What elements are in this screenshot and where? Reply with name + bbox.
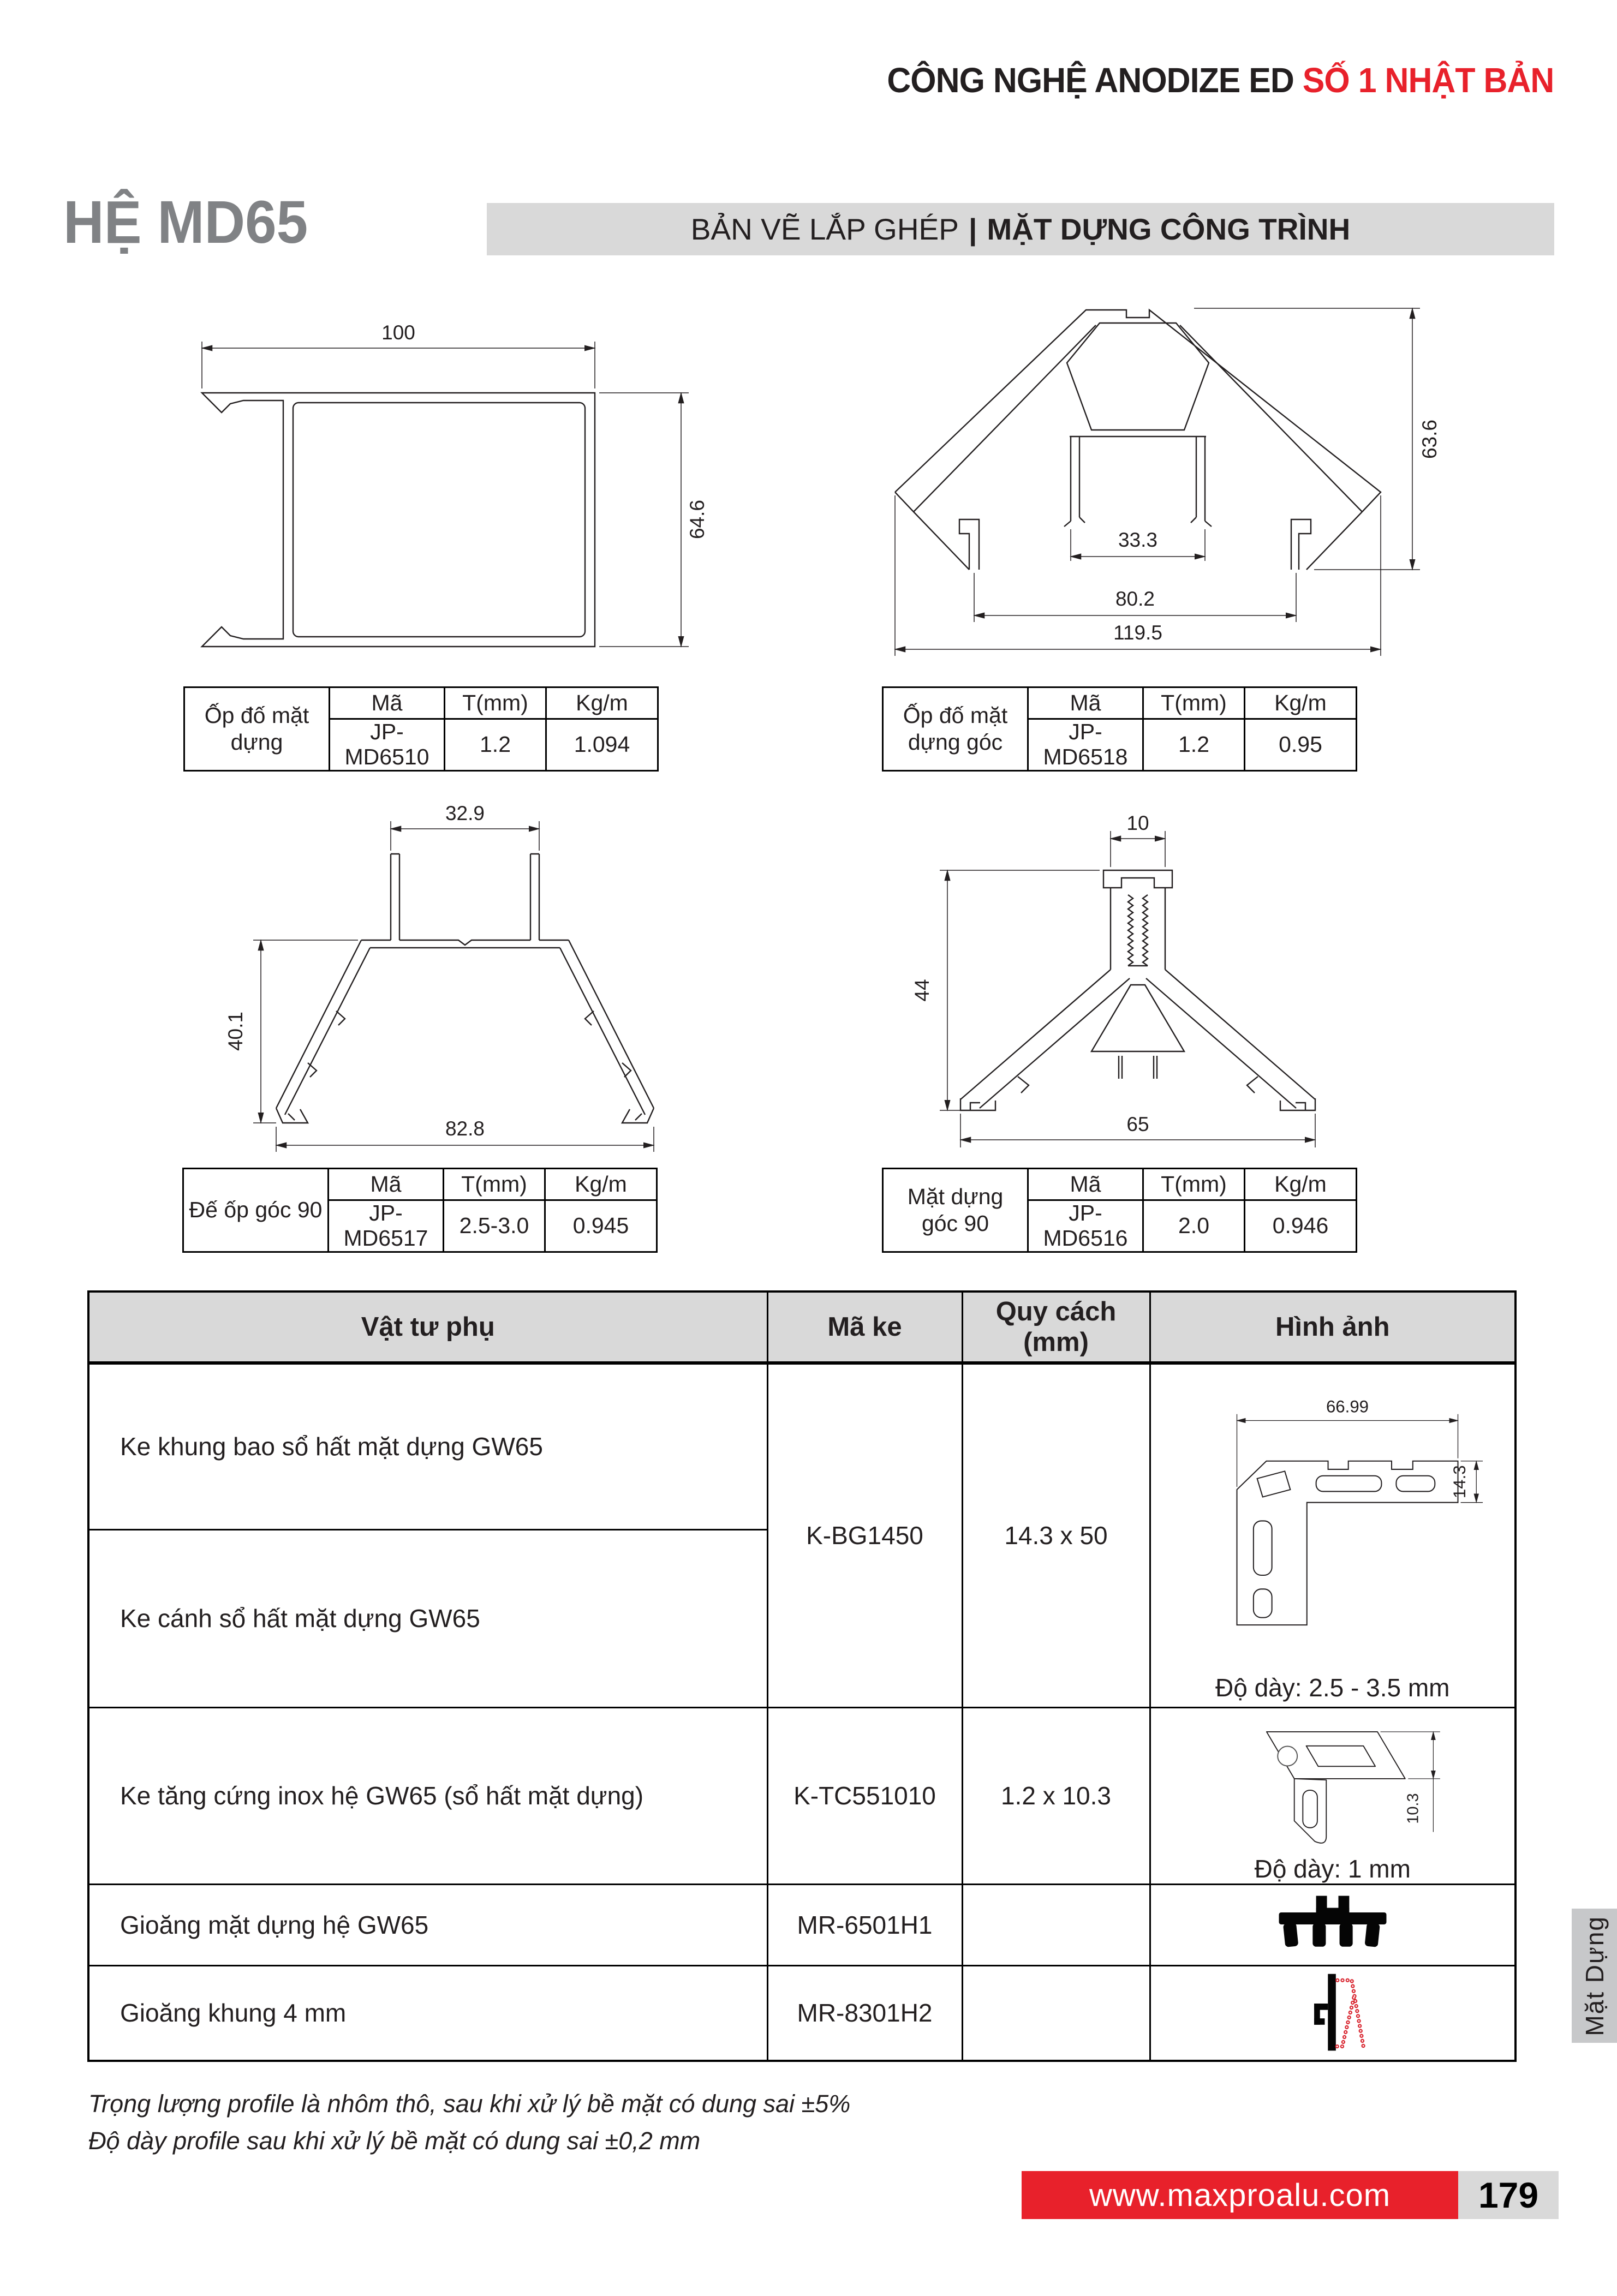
profile-name: Ốp đố mặt dựng góc <box>883 687 1028 771</box>
col-ma: Mã <box>1028 1169 1143 1200</box>
accessories-table: Vật tư phụ Mã ke Quy cách (mm) Hình ảnh … <box>87 1290 1517 2062</box>
banner-divider: | <box>969 212 977 247</box>
accessory-label: Ke tăng cứng inox hệ GW65 (sổ hất mặt dự… <box>88 1707 767 1884</box>
profile-thickness: 2.5-3.0 <box>444 1200 545 1252</box>
profile-drawing-op-do-mat-dung: 100 64.6 <box>164 289 742 671</box>
system-title: HỆ MD65 <box>63 188 308 257</box>
dim-label: 40.1 <box>224 1012 247 1051</box>
footnote-line: Độ dày profile sau khi xử lý bề mặt có d… <box>88 2122 850 2160</box>
profile-weight: 0.945 <box>545 1200 657 1252</box>
col-t: T(mm) <box>1143 1169 1245 1200</box>
banner-right: MẶT DỰNG CÔNG TRÌNH <box>987 212 1350 247</box>
accessory-label: Ke cánh sổ hất mặt dựng GW65 <box>88 1529 767 1707</box>
profile-drawing-op-do-mat-dung-goc: 33.3 63.6 80.2 119.5 <box>851 267 1463 671</box>
col-kg: Kg/m <box>1245 1169 1357 1200</box>
page-title: CÔNG NGHỆ ANODIZE ED SỐ 1 NHẬT BẢN <box>887 60 1554 100</box>
accessories-header-row: Vật tư phụ Mã ke Quy cách (mm) Hình ảnh <box>88 1291 1515 1363</box>
col-ma: Mã <box>330 687 445 719</box>
profile-code: JP-MD6510 <box>330 719 445 771</box>
col-ma: Mã <box>1028 687 1143 719</box>
col-ma: Mã <box>329 1169 444 1200</box>
col-kg: Kg/m <box>1245 687 1357 719</box>
profile-drawing-mat-dung-goc-90: 10 44 65 <box>879 805 1403 1154</box>
footnotes: Trọng lượng profile là nhôm thô, sau khi… <box>88 2085 850 2159</box>
profile-code: JP-MD6516 <box>1028 1200 1143 1252</box>
table-row: Gioăng khung 4 mm MR-8301H2 <box>88 1965 1515 2061</box>
accessory-image-cell <box>1150 1965 1515 2061</box>
col-ma-ke: Mã ke <box>767 1291 962 1363</box>
profile-thickness: 2.0 <box>1143 1200 1245 1252</box>
col-quy-cach: Quy cách (mm) <box>962 1291 1150 1363</box>
dim-label: 65 <box>1126 1113 1149 1135</box>
accessory-size: 1.2 x 10.3 <box>962 1707 1150 1884</box>
dim-label: 63.6 <box>1418 420 1441 459</box>
banner-left: BẢN VẼ LẮP GHÉP <box>691 212 959 247</box>
spec-table-mat-dung-goc-90: Mặt dựng góc 90 Mã T(mm) Kg/m JP-MD6516 … <box>882 1168 1357 1253</box>
dim-label: 10.3 <box>1404 1793 1422 1823</box>
col-t: T(mm) <box>445 687 546 719</box>
profile-code: JP-MD6518 <box>1028 719 1143 771</box>
spec-table-de-op-goc-90: Đế ốp góc 90 Mã T(mm) Kg/m JP-MD6517 2.5… <box>182 1168 658 1253</box>
website-url: www.maxproalu.com <box>1089 2177 1391 2214</box>
accessory-size: 14.3 x 50 <box>962 1363 1150 1707</box>
side-tab-label: Mặt Dựng <box>1580 1916 1609 2036</box>
section-side-tab: Mặt Dựng <box>1572 1909 1617 2043</box>
dim-label: 80.2 <box>1115 588 1155 610</box>
table-row: Ke tăng cứng inox hệ GW65 (sổ hất mặt dự… <box>88 1707 1515 1884</box>
profile-thickness: 1.2 <box>1143 719 1245 771</box>
profile-drawing-de-op-goc-90: 32.9 40.1 82.8 <box>218 805 720 1154</box>
accessory-size <box>962 1965 1150 2061</box>
title-red: SỐ 1 NHẬT BẢN <box>1302 61 1554 100</box>
accessory-code: K-BG1450 <box>767 1363 962 1707</box>
col-t: T(mm) <box>444 1169 545 1200</box>
accessory-image-cell: 66.99 14.3 Độ dày: 2.5 - 3.5 mm <box>1150 1363 1515 1707</box>
dim-label: 44 <box>911 979 933 1001</box>
profile-weight: 0.946 <box>1245 1200 1357 1252</box>
accessory-label: Ke khung bao sổ hất mặt dựng GW65 <box>88 1363 767 1529</box>
catalog-page: CÔNG NGHỆ ANODIZE ED SỐ 1 NHẬT BẢN HỆ MD… <box>0 0 1617 2296</box>
profile-name: Mặt dựng góc 90 <box>883 1169 1028 1252</box>
dim-label: 14.3 <box>1450 1465 1469 1498</box>
title-black: CÔNG NGHỆ ANODIZE ED <box>887 61 1294 100</box>
accessory-image-cell <box>1150 1884 1515 1965</box>
page-number: 179 <box>1458 2171 1559 2219</box>
table-row: Ke khung bao sổ hất mặt dựng GW65 K-BG14… <box>88 1363 1515 1529</box>
col-vat-tu-phu: Vật tư phụ <box>88 1291 767 1363</box>
profile-name: Đế ốp góc 90 <box>183 1169 329 1252</box>
gasket-icon <box>1273 1891 1393 1959</box>
accessory-code: MR-6501H1 <box>767 1884 962 1965</box>
dim-label: 64.6 <box>686 500 708 539</box>
footnote-line: Trọng lượng profile là nhôm thô, sau khi… <box>88 2085 850 2122</box>
accessory-label: Gioăng khung 4 mm <box>88 1965 767 2061</box>
profile-weight: 1.094 <box>546 719 658 771</box>
dim-label: 66.99 <box>1326 1397 1369 1416</box>
frame-gasket-icon <box>1292 1969 1374 2056</box>
angle-bracket-image: 10.3 <box>1196 1708 1469 1845</box>
profile-weight: 0.95 <box>1245 719 1357 771</box>
dim-label: 33.3 <box>1118 529 1157 551</box>
dim-label: 100 <box>381 321 415 344</box>
dim-label: 10 <box>1126 812 1149 834</box>
thickness-note: Độ dày: 2.5 - 3.5 mm <box>1151 1673 1515 1702</box>
col-kg: Kg/m <box>545 1169 657 1200</box>
profile-code: JP-MD6517 <box>329 1200 444 1252</box>
profile-name: Ốp đố mặt dựng <box>184 687 330 771</box>
section-banner: BẢN VẼ LẮP GHÉP | MẶT DỰNG CÔNG TRÌNH <box>487 203 1554 255</box>
accessory-code: MR-8301H2 <box>767 1965 962 2061</box>
footer-website-bar: www.maxproalu.com <box>1022 2171 1458 2219</box>
spec-table-op-do-mat-dung: Ốp đố mặt dựng Mã T(mm) Kg/m JP-MD6510 1… <box>183 686 659 772</box>
accessory-size <box>962 1884 1150 1965</box>
col-t: T(mm) <box>1143 687 1245 719</box>
thickness-note: Độ dày: 1 mm <box>1151 1854 1515 1884</box>
accessory-label: Gioăng mặt dựng hệ GW65 <box>88 1884 767 1965</box>
dim-label: 119.5 <box>1113 621 1162 644</box>
col-kg: Kg/m <box>546 687 658 719</box>
table-row: Gioăng mặt dựng hệ GW65 MR-6501H1 <box>88 1884 1515 1965</box>
col-hinh-anh: Hình ảnh <box>1150 1291 1515 1363</box>
profile-thickness: 1.2 <box>445 719 546 771</box>
corner-bracket-image: 66.99 14.3 <box>1153 1369 1513 1664</box>
accessory-code: K-TC551010 <box>767 1707 962 1884</box>
spec-table-op-do-mat-dung-goc: Ốp đố mặt dựng góc Mã T(mm) Kg/m JP-MD65… <box>882 686 1357 772</box>
accessory-image-cell: 10.3 Độ dày: 1 mm <box>1150 1707 1515 1884</box>
dim-label: 82.8 <box>445 1117 485 1140</box>
dim-label: 32.9 <box>445 802 485 824</box>
